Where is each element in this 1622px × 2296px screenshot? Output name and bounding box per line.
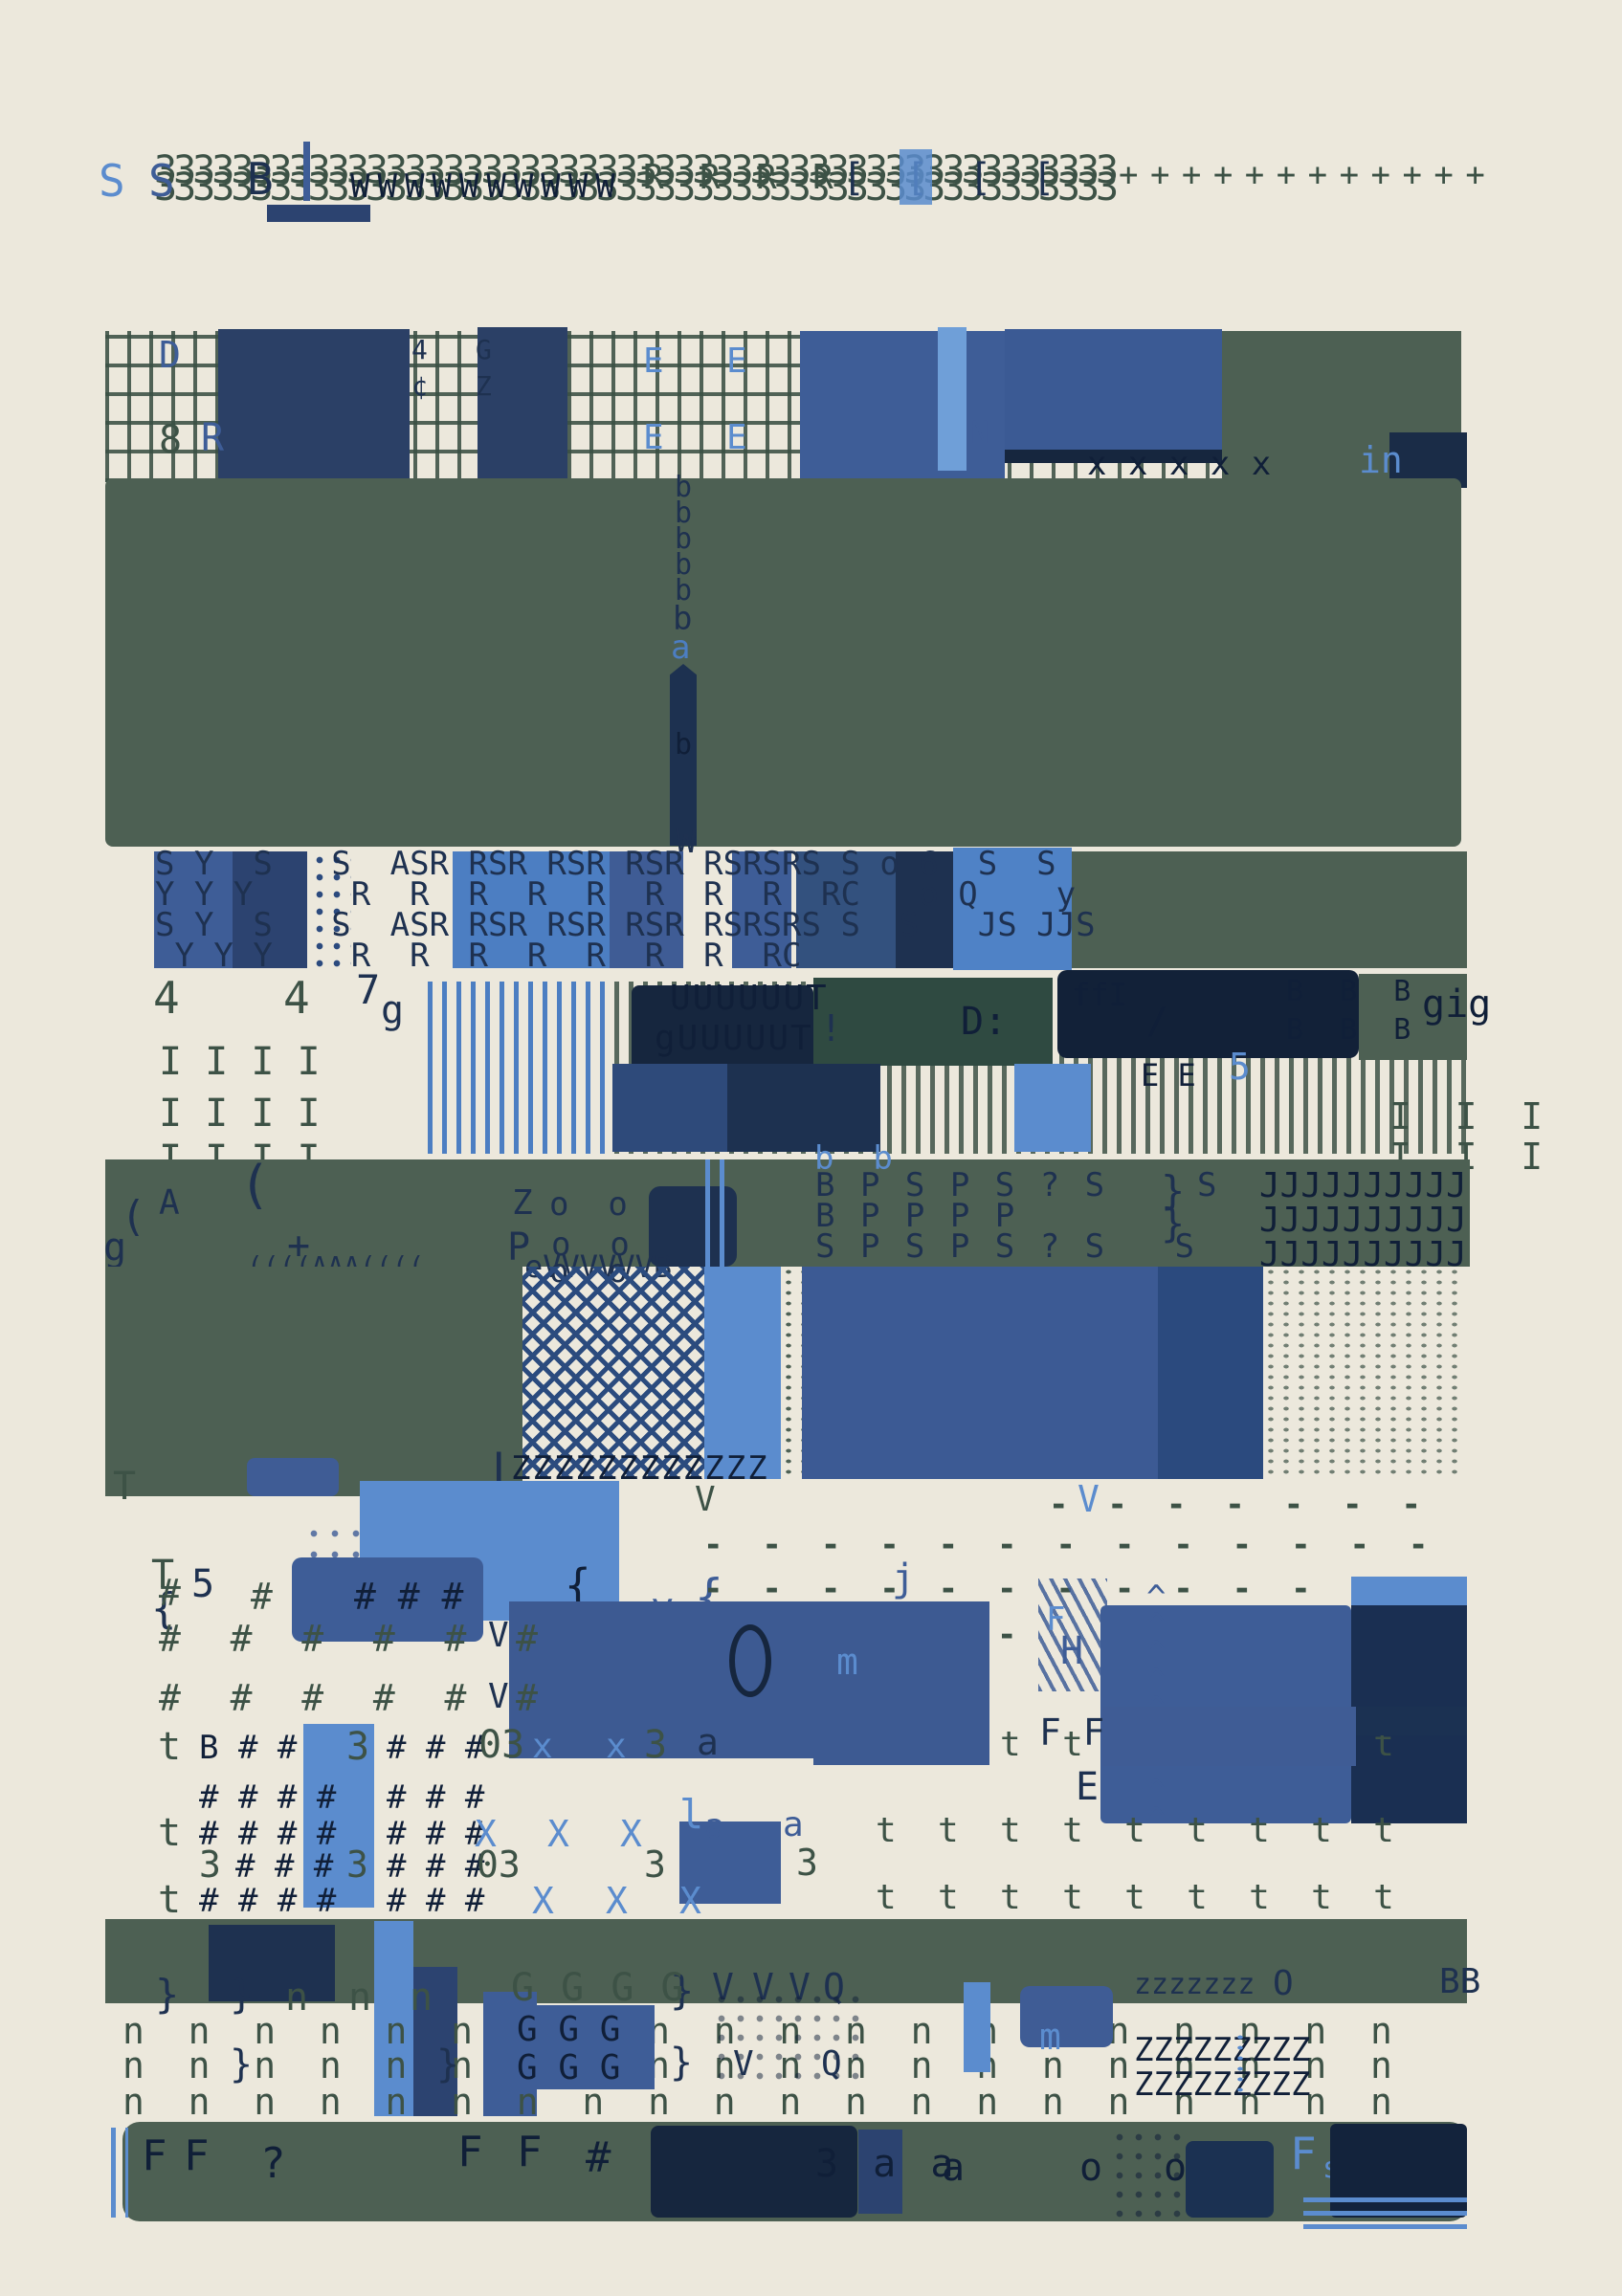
navy-underline-chip [267,205,370,222]
glyph-s-1: S [99,159,125,203]
glyph-four: 4 [411,337,428,364]
glyph-j: j [892,1559,915,1598]
artwork-canvas: 3333333333333333333333333333333333333333… [0,0,1622,2296]
spec-brace-2: } [230,1975,254,2015]
rowC-l: l [679,1795,703,1835]
rowE-x3: X [679,1883,701,1919]
steel-cover-a [813,1712,989,1765]
glyph-e2: E [726,344,747,379]
glyph-v-2: V [488,1680,509,1714]
rowE-t: t [158,1881,181,1919]
glyph-eight: 8 [159,421,182,459]
sky-stripe-column [938,327,967,471]
spec-brace-1: } [155,1975,179,2015]
dash-row-1: - - - - - - - [1049,1489,1421,1521]
n-brace-2: } [436,2045,459,2084]
glyph-run-w: WWWWWWWWWW [350,170,623,203]
steel-cover-b [1102,1707,1356,1766]
glyph-f3: F [457,2131,483,2174]
spec-g-run: G G G G [511,1969,686,2007]
glyph-f2: F [184,2135,210,2177]
rowA-hashes: # # # [387,1732,484,1764]
rowD-3c: 3 [796,1844,818,1881]
rowC-a2: a [783,1808,804,1843]
glyph-t-1: T [113,1468,136,1506]
rowA-03: 03 [478,1726,524,1764]
j-row-1: JJJJJJJJJJ [1259,1169,1467,1203]
g-block-row-1: G G G [517,2013,620,2047]
hash-1c: # # # [354,1578,463,1615]
glyph-s-2: S [148,159,175,203]
glyph-a-mid: a [671,631,690,664]
green-dotted-field [1072,851,1467,968]
glyph-n: N [970,417,989,448]
glyph-f-sky2: F [1290,2131,1317,2175]
sky-fence-chip [1014,1064,1091,1152]
navy-mass-mid [1186,2141,1274,2218]
rowA-x2: x [606,1730,627,1764]
spec-o: O [1273,1967,1294,2001]
steel-fence-chip [612,1064,727,1152]
rs-row-4: Y Y Y R R R R R R R RC [155,939,802,972]
glyph-e1: E [643,344,664,379]
rowD-3: 3 [346,1846,368,1883]
glyph-h: H [1060,1632,1083,1670]
sky-stripe-col-2 [705,1159,726,1267]
dense-weave-right [1158,1267,1263,1479]
glyph-b-low: b [675,731,692,760]
glyph-four-2: 4 [283,976,310,1020]
rowA-3: 3 [346,1728,369,1766]
glyph-f4: F [517,2131,543,2174]
rowC-x2: X [547,1816,569,1852]
blue-fence [428,982,614,1154]
dash-row-2: - - - - - - - - - - - - - [703,1529,1428,1561]
glyph-question: ? [260,2143,286,2185]
rowD-03: 03 [477,1846,521,1883]
sky-bar [964,1982,990,2072]
glyph-b: B [247,157,274,201]
rowA-t: t [158,1728,181,1766]
n-brace-1: } [230,2045,253,2084]
glyph-ee: E E [1141,1060,1196,1091]
coil-texture-2 [1110,2128,1187,2218]
navy-sliver [1356,1707,1467,1735]
glyph-g: G [476,337,492,364]
glyph-triple-a: 3 a a [815,2145,959,2183]
sky-dash-footer [1303,2197,1467,2229]
glyph-e4: E [726,421,747,455]
glyph-bang: ! [820,1010,842,1047]
i-right-1: I I I [1389,1098,1543,1135]
rowD-hashes: # # # [235,1850,333,1883]
glyph-f1: F [142,2135,167,2177]
glyph-brace-2: } [1161,1203,1185,1244]
sky-lattice [704,1267,781,1479]
glyph-run-plus: + + + + + + + + + + + + [1119,159,1481,191]
hash-1a: # [159,1575,181,1611]
spec-bb: BB [1439,1965,1480,1999]
steel-blob [1020,1986,1113,2047]
oval-outline [729,1624,771,1697]
rowE-x1: X [532,1883,554,1919]
glyph-run-x: x x x x x [1087,448,1272,480]
glyph-q2: Q [821,2047,842,2082]
glyph-e5: E [1076,1768,1099,1806]
rowE-hashes: # # # # [199,1885,336,1917]
rowC-t: t [158,1814,181,1852]
glyph-a2: A [159,1186,180,1221]
glyph-b-cols-1: B B B [1286,978,1420,1006]
glyph-b-cols-2: B B B [1286,1016,1420,1045]
glyph-cent: ¢ [411,373,428,400]
dense-weave [802,1267,1158,1479]
rowC-a1: a [704,1810,725,1844]
n-brace-3: } [670,2043,693,2082]
glyph-gig: gig [1422,985,1491,1024]
rowA-33: 3 [644,1726,667,1764]
z-row-2b: ZZZ [1252,2068,1310,2101]
glyph-in: in [1359,442,1403,478]
t-grid-row-2: t t t t t t t t t [876,1814,1394,1848]
glyph-run-r: R R R R [643,161,832,195]
navy-grid-block-a [218,329,410,484]
glyph-v-1: V [488,1619,509,1653]
glyph-o1: o [1079,2149,1102,2187]
glyph-v-over: V [733,2047,754,2082]
z-row-1b: ZZZ [1252,2034,1310,2066]
glyph-paren-2: ( [121,1196,146,1238]
glyph-paren-1: ( [239,1159,271,1211]
glyph-d-colon: D: [961,1003,1007,1041]
rowD-hashes-2: # # # [387,1850,484,1883]
green-field [105,478,1461,847]
glyph-z: Z [476,373,492,400]
i-row-2: I I I I [159,1094,321,1133]
glyph-hash-b: # [586,2137,611,2179]
rowD-3a: 3 [199,1846,221,1883]
hash-1b: # [251,1578,273,1615]
spec-z-small: zzzzzzz [1134,1971,1255,1999]
hash-row-2: # # # # # # [159,1621,540,1657]
glyph-d: D [159,337,181,373]
dark-green-zone [813,978,1053,1066]
glyph-b-stack: b b b b b [675,475,692,604]
sky-fringe-left [111,2128,128,2218]
semicolon-column [781,1267,802,1479]
glyph-run-z: ZZZZZZZZZZZZ [511,1452,769,1485]
glyph-r: R [201,419,224,457]
rowA-x1: x [532,1730,553,1764]
rowA-a: a [697,1724,719,1760]
j-row-2: JJJJJJJJJJ [1259,1203,1467,1238]
rowC-x3: X [620,1816,642,1852]
glyph-v-green: V [695,1483,716,1517]
glyph-e3: E [643,421,664,455]
glyph-ff: ffI [1072,980,1127,1010]
sky-dot-column [1233,2032,1250,2095]
g-block-row-2: G G G [517,2051,620,2086]
sky-highlight-chip [900,149,932,205]
rowD-3b: 3 [644,1846,666,1883]
diagonal-hatch-block [800,331,1005,480]
rowB-hashes: # # # # [199,1781,336,1814]
glyph-a3: a [942,2149,965,2187]
dotted-tail [1263,1267,1467,1475]
sky-chip-top [1351,1577,1467,1605]
rowB-hashes-2: # # # [387,1781,484,1814]
glyph-run-brackets: [ [ [ [ [842,159,1064,197]
hash-row-3: # # # # # # [159,1680,540,1716]
glyph-five-blue: 5 [1229,1049,1251,1085]
band2-row-3: S P S P S ? S S t [815,1230,1332,1263]
ag-blob [247,1458,339,1496]
glyph-four-1: 4 [153,976,180,1020]
glyph-five: 5 [191,1565,214,1603]
rowC-hashes-2: # # # [387,1818,484,1850]
glyph-run-u2: gUUUUUT [655,1022,813,1056]
glyph-z2: Z [512,1186,533,1221]
glyph-g2: g [381,991,404,1029]
steel-bar [303,142,310,201]
zigzag-strip [209,1925,335,2001]
blue-grid-block [1005,329,1222,463]
glyph-slash: / [1146,1003,1168,1039]
i-row-1: I I I I [159,1043,321,1081]
glyph-m: m [836,1644,858,1680]
glyph-m2: m [1039,2019,1061,2055]
glyph-run-u1: UUUUUUT [670,982,829,1016]
rowE-hashes-2: # # # [387,1885,484,1917]
t-grid-row-3: t t t t t t t t t [876,1881,1394,1915]
rowE-x2: X [606,1883,628,1919]
oo-row-1: o o [549,1188,628,1221]
glyph-seven: 7 [356,970,380,1010]
